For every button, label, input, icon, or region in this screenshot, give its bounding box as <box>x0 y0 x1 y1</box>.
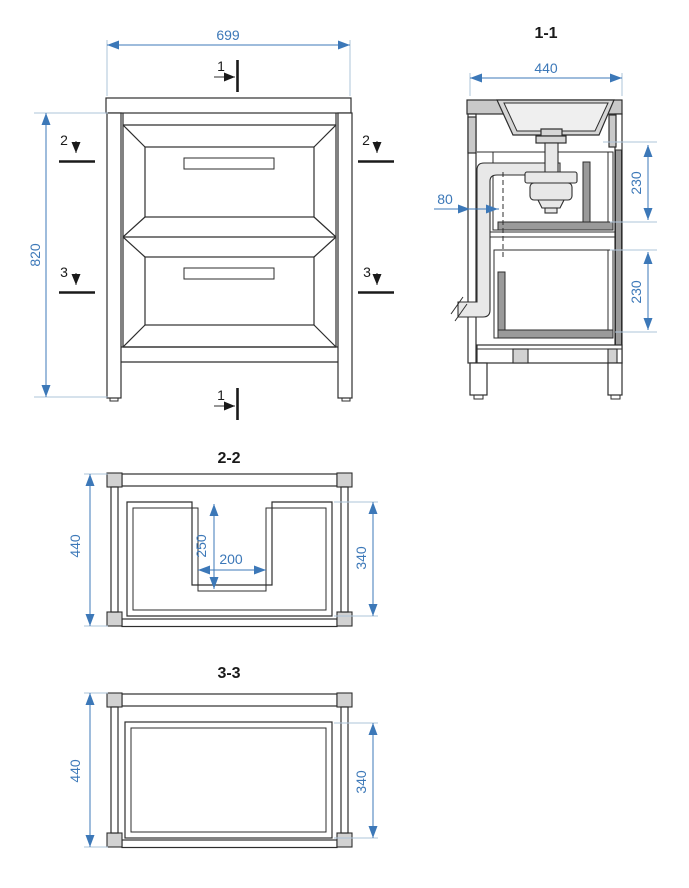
s11-drawer-top-bottom <box>498 222 613 230</box>
svg-text:3: 3 <box>363 264 371 280</box>
section-2-2-view: 2-2 440 340 250 <box>67 450 378 627</box>
technical-drawing-page: 699 820 1 1 2 2 <box>0 0 689 888</box>
section-3-3-view: 3-3 440 340 <box>67 665 378 848</box>
s11-depth-dimension: 440 <box>470 60 622 96</box>
front-drawer-bottom-handle <box>184 268 274 279</box>
s22-back-panel <box>122 474 337 486</box>
s33-drawer <box>125 722 332 838</box>
section-marker-3-right: 3 <box>358 264 394 293</box>
section-marker-2-right: 2 <box>358 132 394 162</box>
s33-leg-front-left <box>107 833 122 847</box>
section-2-2-title: 2-2 <box>217 450 240 467</box>
svg-text:2: 2 <box>60 132 68 148</box>
front-drawer-bottom <box>123 237 336 347</box>
s11-drawer-bottom-back-wall <box>498 272 505 330</box>
s11-siphon-trap <box>525 143 577 213</box>
s11-drawer-bottom-bottom <box>498 330 613 338</box>
s33-right-side-panel <box>341 707 348 833</box>
s22-leg-back-right <box>337 473 352 487</box>
s22-left-side-panel <box>111 487 118 612</box>
s11-bottom-rail <box>477 345 622 363</box>
front-right-foot <box>342 398 350 401</box>
s33-depth-dimension: 440 <box>67 693 108 847</box>
s22-notch-depth-label: 250 <box>193 534 209 558</box>
s33-back-panel <box>122 694 337 706</box>
s22-drawer-inner-label: 340 <box>353 546 369 570</box>
vanity-technical-drawing: 699 820 1 1 2 2 <box>0 0 689 888</box>
front-left-foot <box>110 398 118 401</box>
front-left-leg <box>107 113 121 398</box>
s11-drawer-bottom <box>494 250 613 338</box>
svg-text:3: 3 <box>60 264 68 280</box>
front-width-label: 699 <box>216 27 240 43</box>
front-height-label: 820 <box>27 243 43 267</box>
s22-front-panel <box>122 619 337 627</box>
s22-right-side-panel <box>341 487 348 612</box>
svg-text:1: 1 <box>217 58 225 74</box>
section-marker-3-left: 3 <box>59 264 95 293</box>
front-drawer-top <box>123 125 336 237</box>
s11-sink <box>497 100 614 143</box>
s22-notch-depth-dimension: 250 <box>193 504 214 589</box>
svg-text:1: 1 <box>217 387 225 403</box>
section-1-1-title: 1-1 <box>534 25 557 42</box>
s22-depth-dimension: 440 <box>67 474 108 626</box>
s11-upper-drawer-label: 230 <box>628 171 644 195</box>
s11-right-leg <box>608 363 622 395</box>
front-view: 699 820 1 1 2 2 <box>27 27 394 420</box>
front-width-dimension: 699 <box>107 27 350 96</box>
section-marker-1-bottom: 1 <box>214 387 238 420</box>
front-height-dimension: 820 <box>27 113 108 397</box>
s11-upper-drawer-dimension: 230 <box>603 142 657 222</box>
section-3-3-title: 3-3 <box>217 665 240 682</box>
s11-offset-label: 80 <box>437 191 453 207</box>
s33-leg-back-left <box>107 693 122 707</box>
front-right-leg <box>338 113 352 398</box>
front-drawer-top-handle <box>184 158 274 169</box>
s33-drawer-inner-label: 340 <box>353 770 369 794</box>
s33-leg-back-right <box>337 693 352 707</box>
svg-text:2: 2 <box>362 132 370 148</box>
s22-leg-front-right <box>337 612 352 626</box>
section-marker-2-left: 2 <box>59 132 95 162</box>
s22-leg-front-left <box>107 612 122 626</box>
s22-notch-width-label: 200 <box>219 551 243 567</box>
s22-leg-back-left <box>107 473 122 487</box>
s33-leg-front-right <box>337 833 352 847</box>
s33-depth-label: 440 <box>67 759 83 783</box>
front-countertop <box>106 98 351 113</box>
s33-left-side-panel <box>111 707 118 833</box>
section-1-1-view: 1-1 <box>434 25 657 399</box>
s11-left-leg <box>470 363 487 395</box>
s11-depth-label: 440 <box>534 60 558 76</box>
s33-front-panel <box>122 840 337 848</box>
s22-depth-label: 440 <box>67 534 83 558</box>
section-marker-1-top: 1 <box>214 58 238 92</box>
s11-drawer-top-notch-wall <box>583 162 590 222</box>
s11-lower-drawer-label: 230 <box>628 280 644 304</box>
